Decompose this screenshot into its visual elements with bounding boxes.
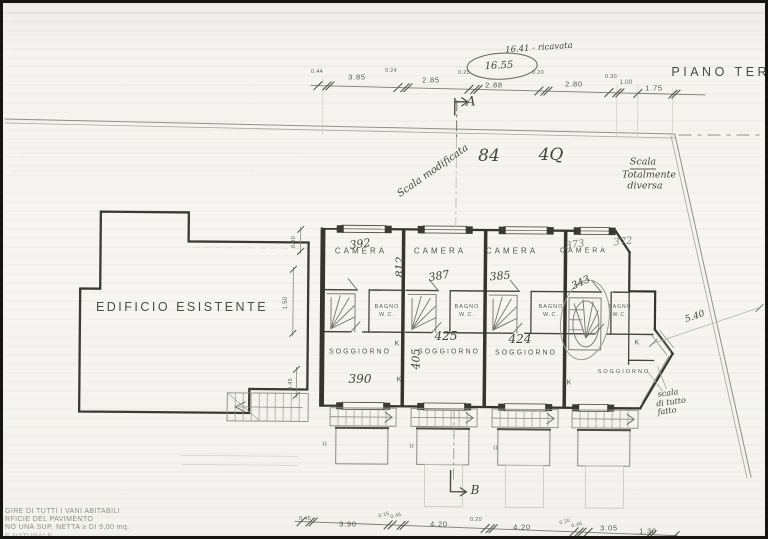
porches — [335, 428, 630, 509]
porch-mark-2: II — [409, 444, 414, 450]
dim-bottom-10: 3.05 — [600, 524, 618, 533]
room-label-wc-3: W.C. — [543, 312, 559, 318]
note-scala-right-2: Totalmente — [622, 170, 676, 181]
dim-bottom-6: 0.20 — [470, 517, 482, 523]
dim-bottom-7: 4.20 — [513, 523, 531, 532]
dim-bottom-1: 0.45 — [299, 516, 311, 522]
footnote-line-4: E NATURALE — [5, 533, 52, 539]
scan-streaks — [8, 21, 765, 171]
kitchen-label-4: K — [635, 340, 640, 347]
room-label-bagno-4: BAGNO — [608, 304, 631, 310]
dim-bottom-5: 4.20 — [430, 520, 448, 529]
dim-left-3: 0.45 — [288, 378, 294, 390]
dim-left-2: 1.50 — [283, 297, 289, 310]
porch-mark-1: II — [322, 442, 327, 448]
dim-bottom-11: 1.30 — [639, 527, 657, 536]
footnote-line-2: RFICIE DEL PAVIMENTO — [5, 516, 93, 523]
area-note-425: 425 — [435, 329, 458, 343]
kitchen-label-1: K — [395, 341, 400, 348]
area-note-812: 812 — [394, 257, 407, 278]
room-label-soggiorno-1: SOGGIORNO — [329, 349, 391, 356]
room-label-soggiorno-4: SOGGIORNO — [598, 369, 651, 375]
footnote-line-3: NO UNA SUP. NETTA ≥ DI 9,00 mq. — [5, 524, 130, 531]
dim-top-4: 2.85 — [422, 76, 440, 85]
dimension-diagonal — [650, 303, 763, 347]
dim-bottom-2: 3.90 — [339, 520, 357, 529]
dim-top-11: 1.75 — [645, 84, 663, 93]
note-scala-right-3: diversa — [627, 181, 662, 192]
winder-stair — [569, 298, 601, 350]
dim-top-5: 0.20 — [458, 70, 470, 76]
dim-top-6: 2.88 — [485, 81, 503, 90]
room-label-bagno-2: BAGNO — [455, 304, 480, 310]
room-label-soggiorno-2: SOGGIORNO — [418, 349, 480, 356]
dimension-chain-left — [289, 226, 304, 398]
note-scala-right-1: Scala — [630, 157, 656, 170]
total-dim-circled: 16.55 — [484, 60, 513, 72]
dim-top-10: 1.00 — [620, 80, 633, 86]
big-number-right: 4Q — [539, 145, 564, 165]
plan-title: PIANO TERR — [671, 65, 768, 79]
section-marker-a: A — [466, 95, 475, 110]
section-line-a — [454, 98, 468, 227]
room-label-bagno-1: BAGNO — [375, 304, 400, 310]
kitchen-label-3: K — [567, 380, 572, 387]
dim-top-9: 0.30 — [605, 74, 617, 80]
new-building-outline — [320, 229, 674, 409]
area-note-424: 424 — [509, 332, 532, 346]
room-label-bagno-3: BAGNO — [539, 304, 564, 310]
area-note-372: 372 — [613, 236, 633, 249]
existing-building-label: EDIFICIO ESISTENTE — [96, 300, 268, 314]
dim-top-2: 3.85 — [348, 73, 366, 82]
dim-top-8: 2.80 — [565, 80, 583, 89]
section-marker-b: B — [471, 483, 480, 497]
dim-top-7: 0.20 — [532, 70, 544, 76]
area-note-405: 405 — [410, 349, 423, 370]
dim-top-1: 0.44 — [311, 69, 323, 75]
room-label-soggiorno-3: SOGGIORNO — [495, 350, 557, 357]
room-label-wc-4: W.C. — [613, 312, 628, 318]
room-label-camera-3: CAMERA — [486, 247, 538, 256]
footnote-line-1: GIRE DI TUTTI I VANI ABITABILI — [5, 508, 120, 515]
room-label-camera-2: CAMERA — [414, 247, 466, 256]
area-note-390: 390 — [349, 372, 372, 386]
area-note-385: 385 — [489, 269, 511, 284]
dim-top-3: 0.24 — [385, 68, 397, 74]
kitchen-label-2: K — [397, 377, 402, 384]
big-number-left: 84 — [478, 146, 500, 166]
room-label-wc-1: W.C. — [379, 312, 395, 318]
scanned-floor-plan: PIANO TERR EDIFICIO ESISTENTE CAMERA CAM… — [0, 0, 768, 539]
dim-left-1: 0.90 — [291, 236, 297, 248]
room-label-wc-2: W.C. — [459, 312, 475, 318]
porch-mark-3: II — [493, 446, 498, 452]
